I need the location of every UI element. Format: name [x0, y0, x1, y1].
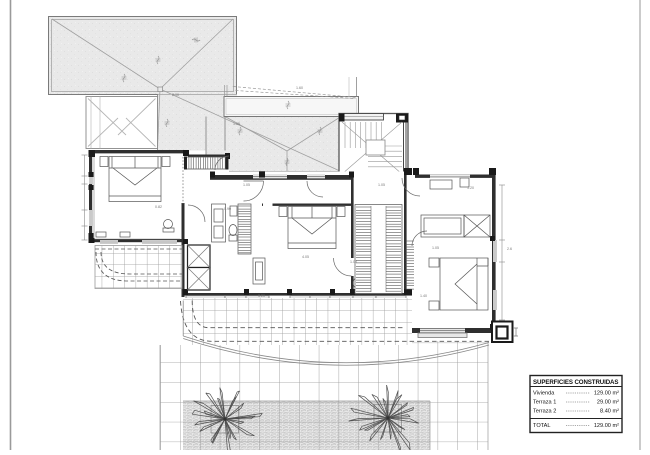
svg-text:TOTAL: TOTAL — [533, 423, 551, 429]
svg-text:129.00 m²: 129.00 m² — [594, 423, 619, 429]
svg-text:3.20: 3.20 — [258, 294, 265, 298]
svg-text:1.05: 1.05 — [378, 183, 385, 187]
svg-text:8.40 m²: 8.40 m² — [600, 409, 619, 415]
svg-text:Vivienda: Vivienda — [533, 391, 555, 397]
svg-text:1.20: 1.20 — [467, 186, 474, 190]
svg-text:2.10: 2.10 — [172, 93, 179, 97]
svg-text:Terraza 1: Terraza 1 — [533, 400, 556, 406]
svg-text:0.90: 0.90 — [224, 207, 231, 211]
svg-text:4.05: 4.05 — [302, 255, 309, 259]
svg-text:SUPERFICIES CONSTRUIDAS: SUPERFICIES CONSTRUIDAS — [533, 379, 618, 386]
svg-text:1.05: 1.05 — [350, 260, 357, 264]
svg-text:129.00 m²: 129.00 m² — [594, 391, 619, 397]
svg-text:1.05: 1.05 — [432, 246, 439, 250]
svg-text:29.00 m²: 29.00 m² — [597, 400, 619, 406]
svg-text:1.05: 1.05 — [243, 183, 250, 187]
svg-text:1.05: 1.05 — [233, 122, 240, 126]
svg-text:Terraza 2: Terraza 2 — [533, 409, 556, 415]
svg-text:1.40: 1.40 — [420, 294, 427, 298]
svg-text:0.82: 0.82 — [155, 205, 162, 209]
svg-text:2.6: 2.6 — [507, 247, 512, 251]
svg-text:1.60: 1.60 — [296, 86, 303, 90]
